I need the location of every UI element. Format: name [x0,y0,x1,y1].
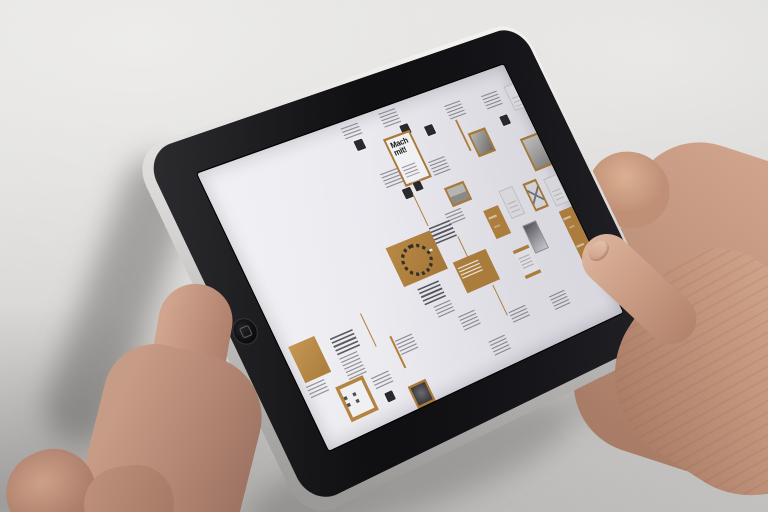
photo-scene: Mach mit! [0,0,768,512]
home-button-icon [238,324,252,338]
thumbnail-nail [585,237,613,265]
